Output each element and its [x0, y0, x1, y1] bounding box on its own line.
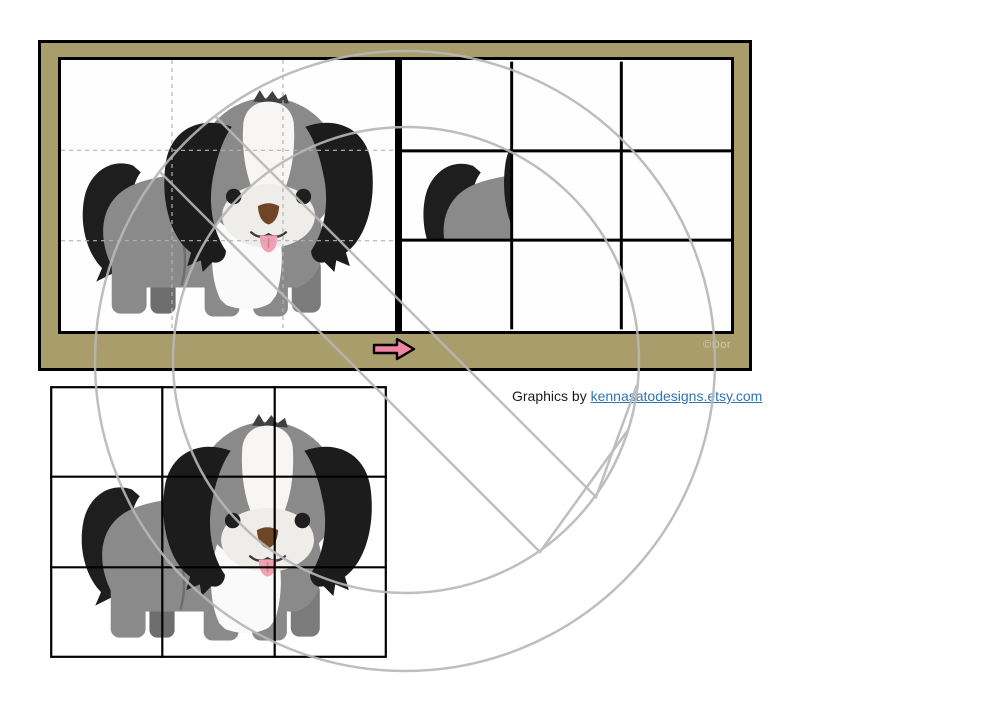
worksheet-page: ©Dor Graphics by kennasatodesigns.etsy.c…: [0, 0, 1000, 707]
cut-out-grid: [50, 386, 387, 658]
etsy-link[interactable]: kennasatodesigns.etsy.com: [591, 388, 763, 404]
puzzle-board: ©Dor: [38, 40, 752, 371]
puzzle-piece-tail: [423, 91, 710, 315]
cut-out-puppy-image: [50, 386, 387, 658]
copyright-label: ©Dor: [703, 339, 731, 351]
puppy-image: [61, 60, 395, 331]
right-arrow-icon: [371, 336, 417, 362]
assembly-grid-panel: [395, 57, 734, 334]
credit-prefix: Graphics by: [512, 388, 591, 404]
assembly-grid: [402, 60, 731, 331]
credit-line: Graphics by kennasatodesigns.etsy.com: [512, 388, 762, 404]
model-picture-panel: [58, 57, 398, 334]
